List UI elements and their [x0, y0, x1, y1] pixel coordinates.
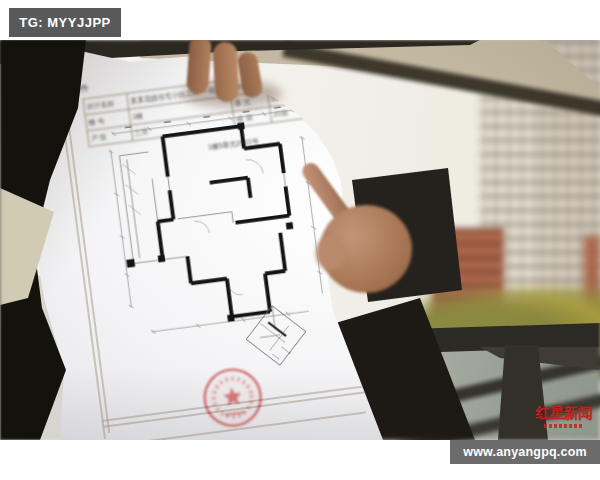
url-watermark-label: www.anyangpq.com: [463, 445, 587, 459]
tag-watermark-label: TG: MYYJJPP: [19, 15, 110, 30]
gripping-fingers: [186, 40, 212, 95]
red-star-news-logo: 红星新闻: [536, 404, 592, 428]
pointing-hand-thumb: [316, 236, 346, 270]
official-seal-stamp: [197, 362, 269, 434]
press-logo-subtext: [544, 424, 584, 428]
press-logo-title: 红星新闻: [536, 404, 592, 423]
gripping-finger-2: [212, 41, 239, 102]
photo-of-floorplan: 附件 设计名称 某某花园住宅小区工程 一期 测绘单位 某某测绘有限公司 幢 号 …: [0, 40, 600, 440]
url-watermark: www.anyangpq.com: [450, 440, 600, 464]
tag-watermark: TG: MYYJJPP: [9, 8, 121, 37]
screenshot-canvas: 附件 设计名称 某某花园住宅小区工程 一期 测绘单位 某某测绘有限公司 幢 号 …: [0, 0, 600, 480]
